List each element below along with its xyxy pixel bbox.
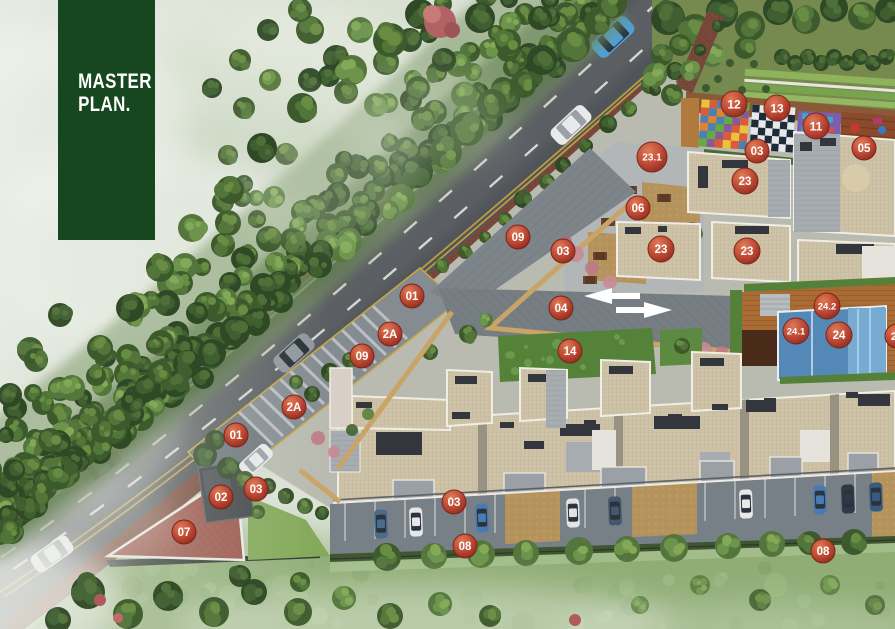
svg-text:12: 12 <box>727 97 741 111</box>
svg-text:03: 03 <box>448 497 461 509</box>
svg-text:03: 03 <box>557 246 570 258</box>
svg-text:23: 23 <box>655 244 668 256</box>
svg-text:13: 13 <box>770 101 784 115</box>
svg-text:08: 08 <box>459 541 472 553</box>
svg-text:09: 09 <box>356 351 369 363</box>
svg-text:11: 11 <box>810 119 823 133</box>
svg-text:2A: 2A <box>383 329 398 341</box>
svg-text:24.2: 24.2 <box>818 301 837 312</box>
svg-text:08: 08 <box>817 546 830 558</box>
svg-text:05: 05 <box>858 143 871 155</box>
svg-text:09: 09 <box>512 232 525 244</box>
svg-text:03: 03 <box>751 146 764 158</box>
svg-text:03: 03 <box>250 484 263 496</box>
svg-text:06: 06 <box>632 203 645 215</box>
svg-text:23.1: 23.1 <box>642 153 662 164</box>
svg-text:07: 07 <box>178 527 191 539</box>
svg-text:23: 23 <box>741 246 754 258</box>
svg-text:2A: 2A <box>287 402 302 414</box>
svg-text:01: 01 <box>230 430 243 442</box>
svg-text:02: 02 <box>215 492 228 504</box>
svg-text:24: 24 <box>833 330 846 342</box>
svg-text:23: 23 <box>739 176 752 188</box>
svg-text:PLAN.: PLAN. <box>78 93 131 116</box>
svg-text:MASTER: MASTER <box>78 70 152 93</box>
svg-text:24.1: 24.1 <box>787 326 806 337</box>
svg-text:01: 01 <box>406 291 419 303</box>
svg-text:04: 04 <box>555 303 568 315</box>
svg-text:14: 14 <box>564 346 577 358</box>
svg-text:24: 24 <box>891 331 895 343</box>
